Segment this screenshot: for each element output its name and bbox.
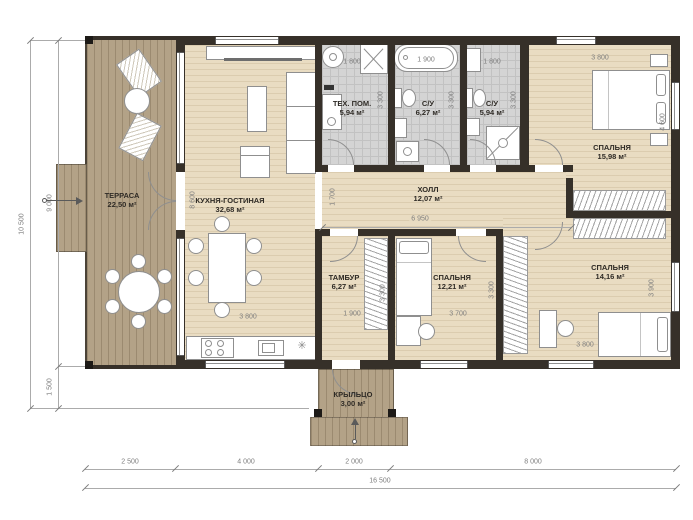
terrace-side-table — [124, 88, 150, 114]
bidet — [466, 118, 480, 136]
wall-tech-left — [315, 36, 322, 172]
room-name: С/У — [480, 99, 505, 108]
desk — [539, 310, 557, 348]
dim-ext-line — [58, 366, 85, 367]
entry-line-terrace — [47, 200, 77, 201]
bathroom-sink — [394, 118, 407, 138]
toilet-tank — [394, 88, 402, 108]
room-name: СПАЛЬНЯ — [591, 263, 629, 272]
dim-bedroom-mid-depth: 3 900 — [649, 279, 656, 297]
room-name: ТЕРРАСА — [105, 191, 140, 200]
wall-bath-master — [520, 36, 529, 172]
dining-chair — [246, 270, 262, 286]
shower-drain — [498, 138, 508, 148]
wall-tambour-bedroom — [388, 229, 395, 369]
porch-post — [388, 409, 396, 417]
nightstand — [650, 54, 668, 67]
entry-arrow-terrace — [76, 197, 83, 205]
window-kitchen-bottom — [205, 361, 285, 368]
room-label-kitchen-living: КУХНЯ-ГОСТИНАЯ 32,68 м² — [195, 196, 264, 214]
wall-kitchen-tambour — [315, 229, 322, 369]
floor-plan: ✳ — [0, 0, 693, 520]
room-area: 12,07 м² — [414, 194, 443, 203]
burner — [217, 349, 224, 356]
terrace-chair — [131, 254, 146, 269]
window-master-top — [556, 37, 596, 44]
window-bedroom-mid — [548, 361, 594, 368]
room-label-bath-big: С/У 6,27 м² — [416, 99, 441, 117]
boiler-dial — [327, 117, 336, 126]
dim-bottom-1: 2 500 — [121, 459, 139, 466]
room-label-tech: ТЕХ. ПОМ. 5,94 м² — [333, 99, 371, 117]
dining-chair — [188, 238, 204, 254]
room-area: 12,21 м² — [433, 282, 471, 291]
blanket-line — [608, 71, 609, 129]
wardrobe-master — [573, 190, 666, 211]
wall-wardrobe-mid — [566, 211, 671, 218]
room-label-bath-small: С/У 5,94 м² — [480, 99, 505, 117]
dim-tambour-depth: 3 300 — [380, 284, 387, 302]
dining-chair — [214, 216, 230, 232]
burner — [205, 349, 212, 356]
room-name: СПАЛЬНЯ — [433, 273, 471, 282]
door-gap-porch — [332, 360, 360, 369]
desk-chair — [557, 320, 574, 337]
desk-chair — [418, 323, 435, 340]
entry-marker-porch — [352, 439, 357, 444]
room-name: С/У — [416, 99, 441, 108]
room-label-hall: ХОЛЛ 12,07 м² — [414, 185, 443, 203]
dim-bedroom-mid-width: 3 800 — [576, 342, 594, 349]
sofa — [286, 72, 316, 174]
dim-left-total: 10 500 — [19, 211, 26, 236]
room-label-tambour: ТАМБУР 6,27 м² — [329, 273, 360, 291]
room-area: 32,68 м² — [195, 205, 264, 214]
room-name: ТЕХ. ПОМ. — [333, 99, 371, 108]
terrace-chair — [157, 299, 172, 314]
dim-bedroom-small-width: 3 700 — [449, 311, 467, 318]
terrace-chair — [105, 269, 120, 284]
door-gap-bath-small — [470, 165, 496, 172]
tv — [224, 58, 302, 61]
terrace-edge-bottom — [85, 365, 177, 369]
wardrobe-bedroom-mid-left — [503, 236, 528, 354]
wardrobe-bedroom-mid-top — [573, 218, 666, 239]
door-gap-tambour — [330, 229, 358, 236]
pillow — [657, 317, 668, 352]
window-master-right — [672, 82, 679, 130]
terrace-edge-top — [85, 36, 177, 40]
terrace-chair — [131, 314, 146, 329]
entry-line-porch — [355, 425, 356, 439]
room-label-terrace: ТЕРРАСА 22,50 м² — [105, 191, 140, 209]
room-label-master: СПАЛЬНЯ 15,98 м² — [593, 143, 631, 161]
room-name: КРЫЛЬЦО — [334, 390, 373, 399]
dim-ext-line — [30, 408, 309, 409]
dining-chair — [246, 238, 262, 254]
bathtub-drain — [403, 55, 408, 60]
door-gap-bath-big — [424, 165, 450, 172]
wall-bedrooms-divider — [496, 229, 503, 369]
window-kitchen-terrace-2 — [177, 238, 184, 356]
dim-bath-big-depth: 3 300 — [449, 91, 456, 109]
dim-left-bottom: 1 500 — [47, 376, 54, 398]
room-area: 6,27 м² — [416, 108, 441, 117]
window-kitchen-terrace-1 — [177, 52, 184, 164]
room-name: СПАЛЬНЯ — [593, 143, 631, 152]
electric-panel — [324, 85, 334, 90]
kitchen-sink-bowl — [262, 343, 275, 353]
dim-bath-small-width: 1 800 — [483, 59, 501, 66]
bathroom-sink — [466, 48, 481, 72]
pillow — [399, 241, 429, 254]
dim-left-main: 9 000 — [47, 192, 54, 214]
dim-tech-width: 1 800 — [343, 59, 361, 66]
dim-hall-width: 6 950 — [409, 216, 431, 223]
washing-machine-door — [403, 147, 412, 156]
room-name: КУХНЯ-ГОСТИНАЯ — [195, 196, 264, 205]
dim-bottom-4: 8 000 — [524, 459, 542, 466]
window-bedroom-small — [420, 361, 468, 368]
wall-bath-bath — [460, 36, 467, 172]
blanket-line — [397, 262, 431, 263]
dining-chair — [188, 270, 204, 286]
dim-line-left-inner — [58, 40, 59, 408]
dim-tech-depth: 3 300 — [378, 91, 385, 109]
dim-bath-big-width: 1 900 — [417, 57, 435, 64]
dim-bottom-total: 16 500 — [369, 478, 390, 485]
terrace-round-table — [118, 271, 160, 313]
burner — [217, 340, 224, 347]
room-area: 6,27 м² — [329, 282, 360, 291]
dim-hall-depth: 1 700 — [330, 188, 337, 206]
room-label-bedroom-small: СПАЛЬНЯ 12,21 м² — [433, 273, 471, 291]
water-heater-core — [329, 53, 337, 61]
door-gap-tech — [328, 165, 354, 172]
dining-table — [208, 233, 246, 303]
porch-steps — [310, 417, 408, 446]
room-name: ТАМБУР — [329, 273, 360, 282]
toilet-tank — [466, 88, 473, 108]
wall-tech-bath — [388, 36, 395, 172]
blanket-line — [640, 313, 641, 356]
dim-kitchen-width: 3 800 — [239, 314, 257, 321]
dim-line-bottom-total — [85, 488, 676, 489]
coffee-table — [247, 86, 267, 132]
dim-master-depth: 4 600 — [660, 113, 667, 131]
fridge-icon: ✳ — [294, 341, 310, 352]
room-area: 5,94 м² — [480, 108, 505, 117]
entry-arrow-porch — [351, 418, 359, 425]
room-label-porch: КРЫЛЬЦО 3,00 м² — [334, 390, 373, 408]
armchair — [240, 146, 270, 178]
terrace-post — [85, 36, 93, 44]
window-kitchen-top — [215, 37, 279, 44]
dim-bottom-3: 2 000 — [345, 459, 363, 466]
toilet-bowl — [402, 89, 416, 107]
room-name: ХОЛЛ — [414, 185, 443, 194]
room-area: 5,94 м² — [333, 108, 371, 117]
terrace-post — [85, 361, 93, 369]
terrace-chair — [157, 269, 172, 284]
wall-corridor — [566, 178, 573, 218]
terrace-chair — [105, 299, 120, 314]
room-area: 15,98 м² — [593, 152, 631, 161]
room-area: 22,50 м² — [105, 200, 140, 209]
door-gap-master — [535, 165, 563, 172]
room-area: 14,16 м² — [591, 272, 629, 281]
terrace-side-steps — [56, 164, 87, 252]
dim-line-left-total — [30, 40, 31, 408]
dim-bath-small-depth: 3 300 — [511, 91, 518, 109]
room-label-bedroom-mid: СПАЛЬНЯ 14,16 м² — [591, 263, 629, 281]
dim-bottom-2: 4 000 — [237, 459, 255, 466]
dim-tambour-width: 1 900 — [343, 311, 361, 318]
nightstand — [650, 133, 668, 146]
dining-chair — [214, 302, 230, 318]
dim-line-hall — [322, 227, 571, 228]
door-gap-bedroom-small — [456, 229, 486, 236]
dim-bedroom-small-depth: 3 300 — [489, 281, 496, 299]
room-area: 3,00 м² — [334, 399, 373, 408]
porch-post — [314, 409, 322, 417]
pillow — [656, 74, 666, 96]
door-gap-terrace — [176, 172, 185, 230]
dim-master-width: 3 800 — [591, 55, 609, 62]
window-bedroom-mid-right — [672, 262, 679, 312]
burner — [205, 340, 212, 347]
dim-kitchen-depth: 8 600 — [190, 191, 197, 209]
